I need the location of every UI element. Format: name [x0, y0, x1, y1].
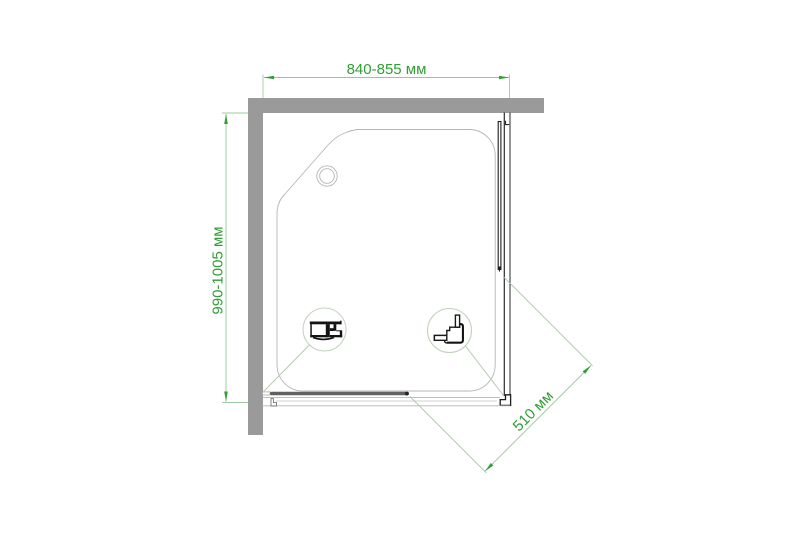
svg-text:840-855 мм: 840-855 мм	[347, 61, 427, 78]
svg-text:990-1005 мм: 990-1005 мм	[209, 226, 226, 314]
